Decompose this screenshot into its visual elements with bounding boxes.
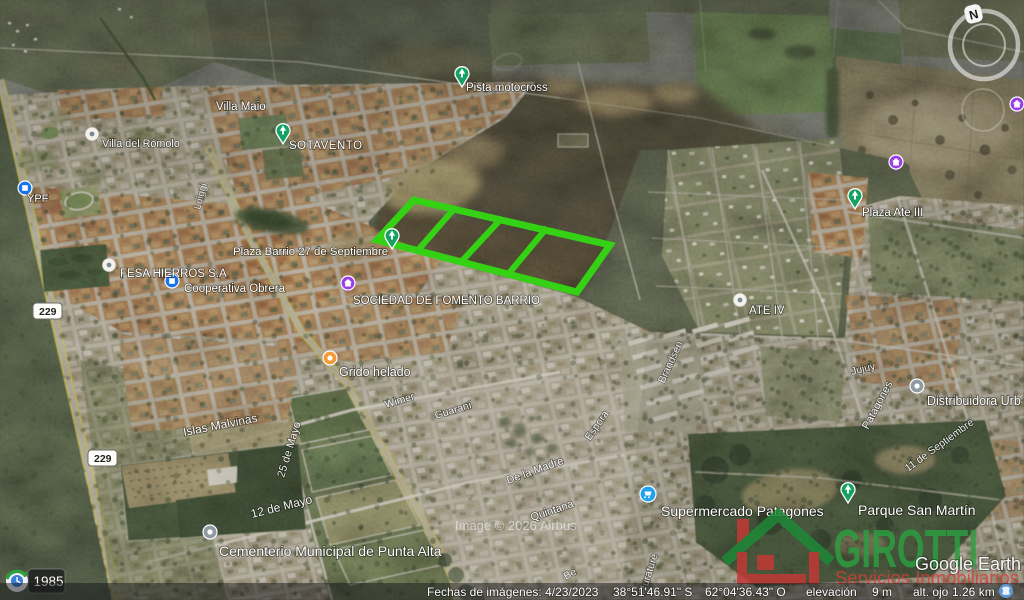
- svg-text:YPF: YPF: [27, 193, 49, 205]
- svg-text:Villa del Rómolo: Villa del Rómolo: [102, 138, 180, 150]
- svg-text:Plaza Barrio 27 de Septiembre: Plaza Barrio 27 de Septiembre: [233, 246, 388, 258]
- svg-text:Grido helado: Grido helado: [339, 365, 411, 379]
- svg-text:Pista motocross: Pista motocross: [466, 82, 548, 94]
- svg-text:Fechas de imágenes: 4/23/2023: Fechas de imágenes: 4/23/2023: [427, 585, 599, 599]
- svg-text:alt. ojo: alt. ojo: [913, 585, 949, 599]
- svg-text:62°04'36.43" O: 62°04'36.43" O: [705, 585, 786, 599]
- svg-text:Cooperativa Obrera: Cooperativa Obrera: [184, 283, 286, 295]
- svg-text:Supermercado Patagones: Supermercado Patagones: [661, 503, 824, 519]
- svg-text:elevación: elevación: [806, 585, 857, 599]
- svg-text:Distribuidora Urb: Distribuidora Urb: [927, 394, 1021, 408]
- svg-text:SOCIEDAD DE FOMENTO BARRIO: SOCIEDAD DE FOMENTO BARRIO: [353, 295, 540, 307]
- svg-text:Google Earth: Google Earth: [915, 554, 1021, 574]
- svg-text:FESA HIERROS S.A: FESA HIERROS S.A: [120, 268, 227, 280]
- svg-text:229: 229: [39, 306, 57, 318]
- svg-text:SOTAVENTO: SOTAVENTO: [289, 140, 363, 152]
- svg-text:1.26 km: 1.26 km: [952, 585, 995, 599]
- svg-text:Parque San Martín: Parque San Martín: [858, 502, 976, 518]
- svg-text:229: 229: [94, 453, 112, 465]
- svg-text:9 m: 9 m: [872, 585, 892, 599]
- svg-text:38°51'46.91" S: 38°51'46.91" S: [613, 585, 692, 599]
- svg-text:Cementerio Municipal de Punta: Cementerio Municipal de Punta Alta: [219, 543, 442, 559]
- svg-text:ATE IV: ATE IV: [749, 305, 785, 317]
- svg-text:Image © 2026 Airbus: Image © 2026 Airbus: [455, 518, 577, 533]
- svg-text:Villa Maio: Villa Maio: [216, 101, 266, 113]
- svg-text:Plaza Ate III: Plaza Ate III: [862, 207, 923, 219]
